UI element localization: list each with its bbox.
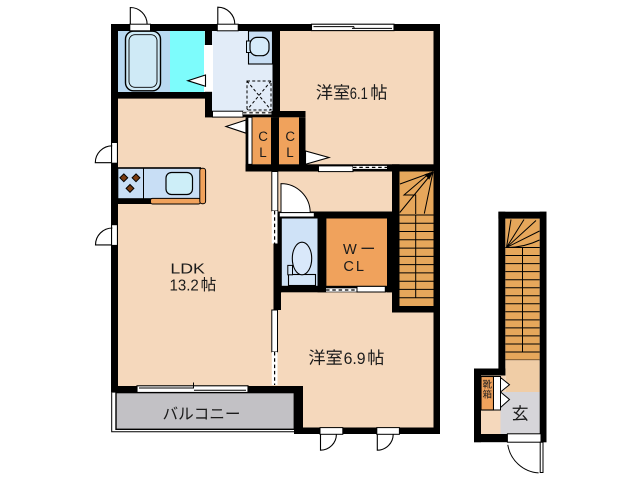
svg-text:C: C: [285, 129, 295, 144]
svg-text:L: L: [286, 145, 293, 160]
svg-text:LDK: LDK: [170, 261, 205, 277]
svg-text:CL: CL: [343, 259, 365, 275]
svg-text:W: W: [343, 242, 357, 258]
svg-text:6.9: 6.9: [344, 349, 366, 368]
svg-text:L: L: [259, 145, 266, 160]
svg-text:C: C: [258, 129, 268, 144]
svg-text:13.2: 13.2: [170, 278, 199, 295]
svg-text:6.1: 6.1: [350, 84, 368, 103]
